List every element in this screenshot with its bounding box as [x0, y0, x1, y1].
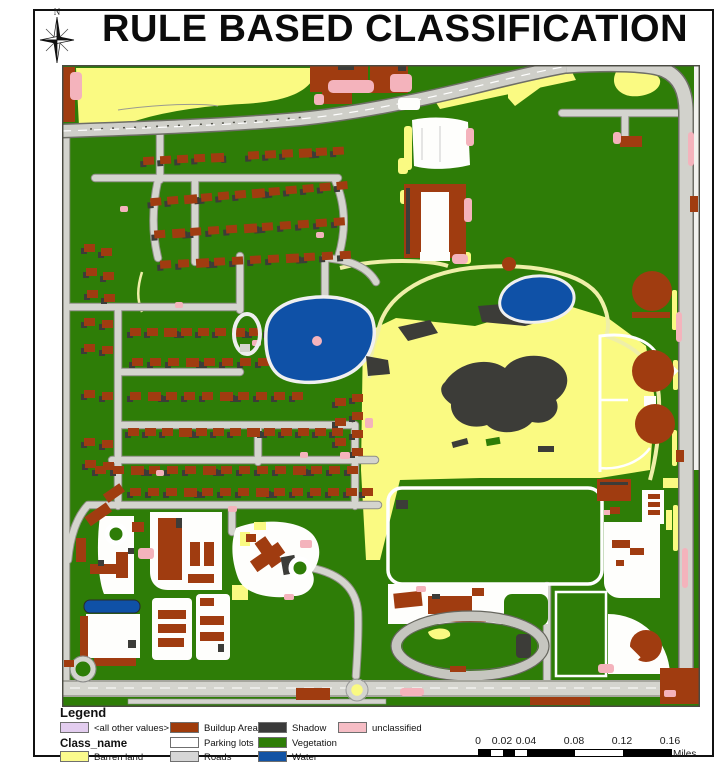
- legend-class-field-label: Class_name: [60, 738, 127, 750]
- legend-label: Buildup Area: [204, 723, 258, 734]
- scale-segment: [527, 750, 575, 756]
- page-title: RULE BASED CLASSIFICATION: [102, 8, 688, 51]
- legend-swatch-unclassified: [338, 722, 367, 733]
- running-track: [388, 584, 606, 681]
- legend-label: Roads: [204, 752, 231, 763]
- scale-tick: 0.16: [655, 735, 685, 747]
- scale-tick: 0.08: [559, 735, 589, 747]
- legend-label: Vegetation: [292, 738, 337, 749]
- legend-swatch-parking-lots: [170, 737, 199, 748]
- scale-segment: [575, 750, 623, 756]
- legend-title: Legend: [60, 705, 106, 720]
- scale-segment: [515, 750, 527, 756]
- scale-unit-label: Miles: [673, 749, 696, 760]
- legend-swatch-vegetation: [258, 737, 287, 748]
- scale-tick: 0.12: [607, 735, 637, 747]
- legend-swatch-shadow: [258, 722, 287, 733]
- north-arrow: N: [36, 6, 80, 68]
- scale-tick: 0.04: [511, 735, 541, 747]
- legend-label: Barren land: [94, 752, 143, 763]
- scale-segment: [623, 750, 671, 756]
- scale-segment: [479, 750, 491, 756]
- scale-segment: [491, 750, 503, 756]
- legend-label: Parking lots: [204, 738, 254, 749]
- legend-label: <all other values>: [94, 723, 169, 734]
- north-label: N: [54, 7, 61, 17]
- scale-segment: [503, 750, 515, 756]
- legend-label: Shadow: [292, 723, 326, 734]
- legend-label: Water: [292, 752, 317, 763]
- legend-swatch-water: [258, 751, 287, 762]
- legend-swatch-all-other-values: [60, 722, 89, 733]
- legend-swatch-barren-land: [60, 751, 89, 762]
- compass-star-icon: [40, 17, 74, 63]
- legend-label: unclassified: [372, 723, 422, 734]
- scale-bar: 0 0.02 0.04 0.08 0.12 0.16 Miles: [460, 735, 716, 759]
- southeast-parking-buildings: [597, 479, 664, 598]
- classification-map: [62, 65, 700, 707]
- legend-swatch-buildup-area: [170, 722, 199, 733]
- scale-bar-segments: [478, 749, 672, 757]
- legend-swatch-roads: [170, 751, 199, 762]
